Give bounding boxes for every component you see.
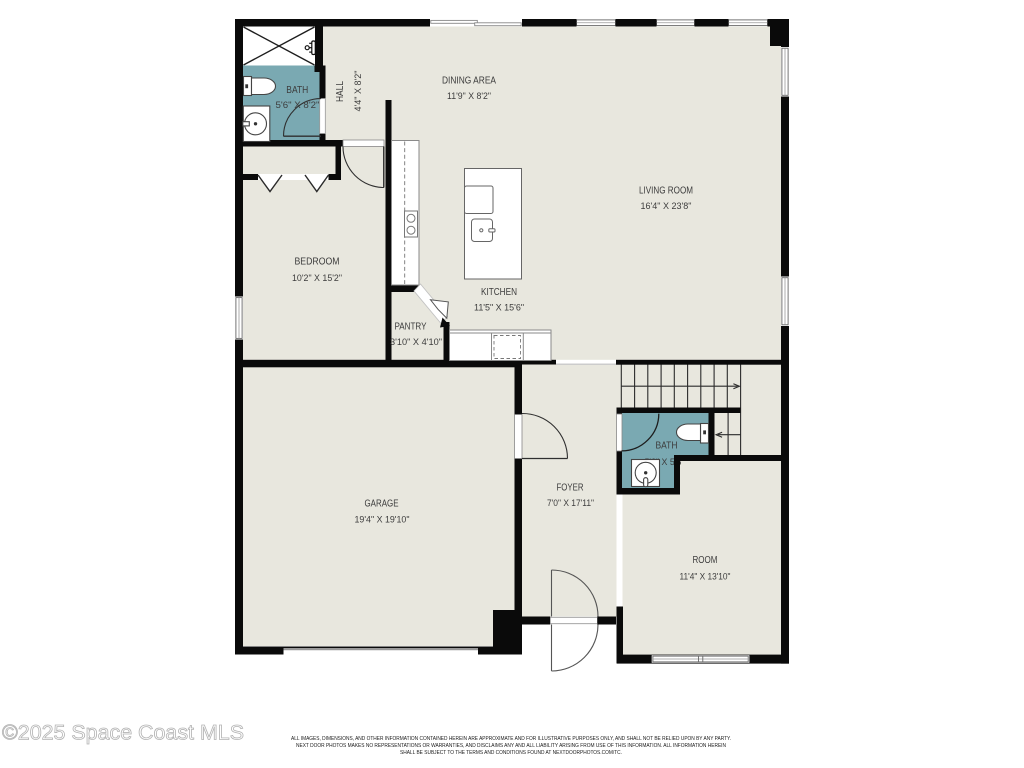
svg-text:SHALL BE SUBJECT TO THE TERMS: SHALL BE SUBJECT TO THE TERMS AND CONDIT… (400, 750, 622, 756)
svg-text:10'2" X 15'2": 10'2" X 15'2" (292, 273, 342, 284)
svg-text:3'10" X 4'10": 3'10" X 4'10" (390, 337, 442, 348)
svg-text:KITCHEN: KITCHEN (481, 287, 517, 298)
svg-text:GARAGE: GARAGE (365, 499, 399, 510)
svg-text:16'4" X 23'8": 16'4" X 23'8" (641, 201, 692, 212)
svg-text:4'4" X 8'2": 4'4" X 8'2" (353, 71, 364, 112)
svg-text:FOYER: FOYER (557, 482, 584, 493)
svg-text:7'0" X 17'11": 7'0" X 17'11" (547, 498, 594, 509)
svg-text:PANTRY: PANTRY (395, 321, 427, 332)
svg-text:DINING AREA: DINING AREA (442, 76, 496, 87)
svg-text:19'4" X 19'10": 19'4" X 19'10" (355, 515, 410, 526)
svg-text:11'5" X 15'6": 11'5" X 15'6" (474, 302, 524, 313)
svg-text:BATH: BATH (286, 85, 308, 96)
svg-text:©2025 Space Coast MLS: ©2025 Space Coast MLS (2, 722, 244, 745)
svg-text:11'4" X 13'10": 11'4" X 13'10" (680, 571, 731, 582)
svg-text:LIVING ROOM: LIVING ROOM (639, 186, 693, 197)
svg-text:ALL IMAGES, DIMENSIONS, AND OT: ALL IMAGES, DIMENSIONS, AND OTHER INFORM… (291, 736, 731, 742)
svg-text:BEDROOM: BEDROOM (295, 257, 340, 268)
svg-text:BATH: BATH (656, 441, 678, 452)
svg-text:ROOM: ROOM (693, 555, 718, 566)
svg-text:5'6" X 8'2": 5'6" X 8'2" (276, 100, 320, 111)
svg-text:NEXT DOOR PHOTOS MAKES NO REPR: NEXT DOOR PHOTOS MAKES NO REPRESENTATION… (296, 743, 726, 749)
svg-text:11'9" X 8'2": 11'9" X 8'2" (447, 91, 491, 102)
svg-text:HALL: HALL (335, 81, 346, 102)
